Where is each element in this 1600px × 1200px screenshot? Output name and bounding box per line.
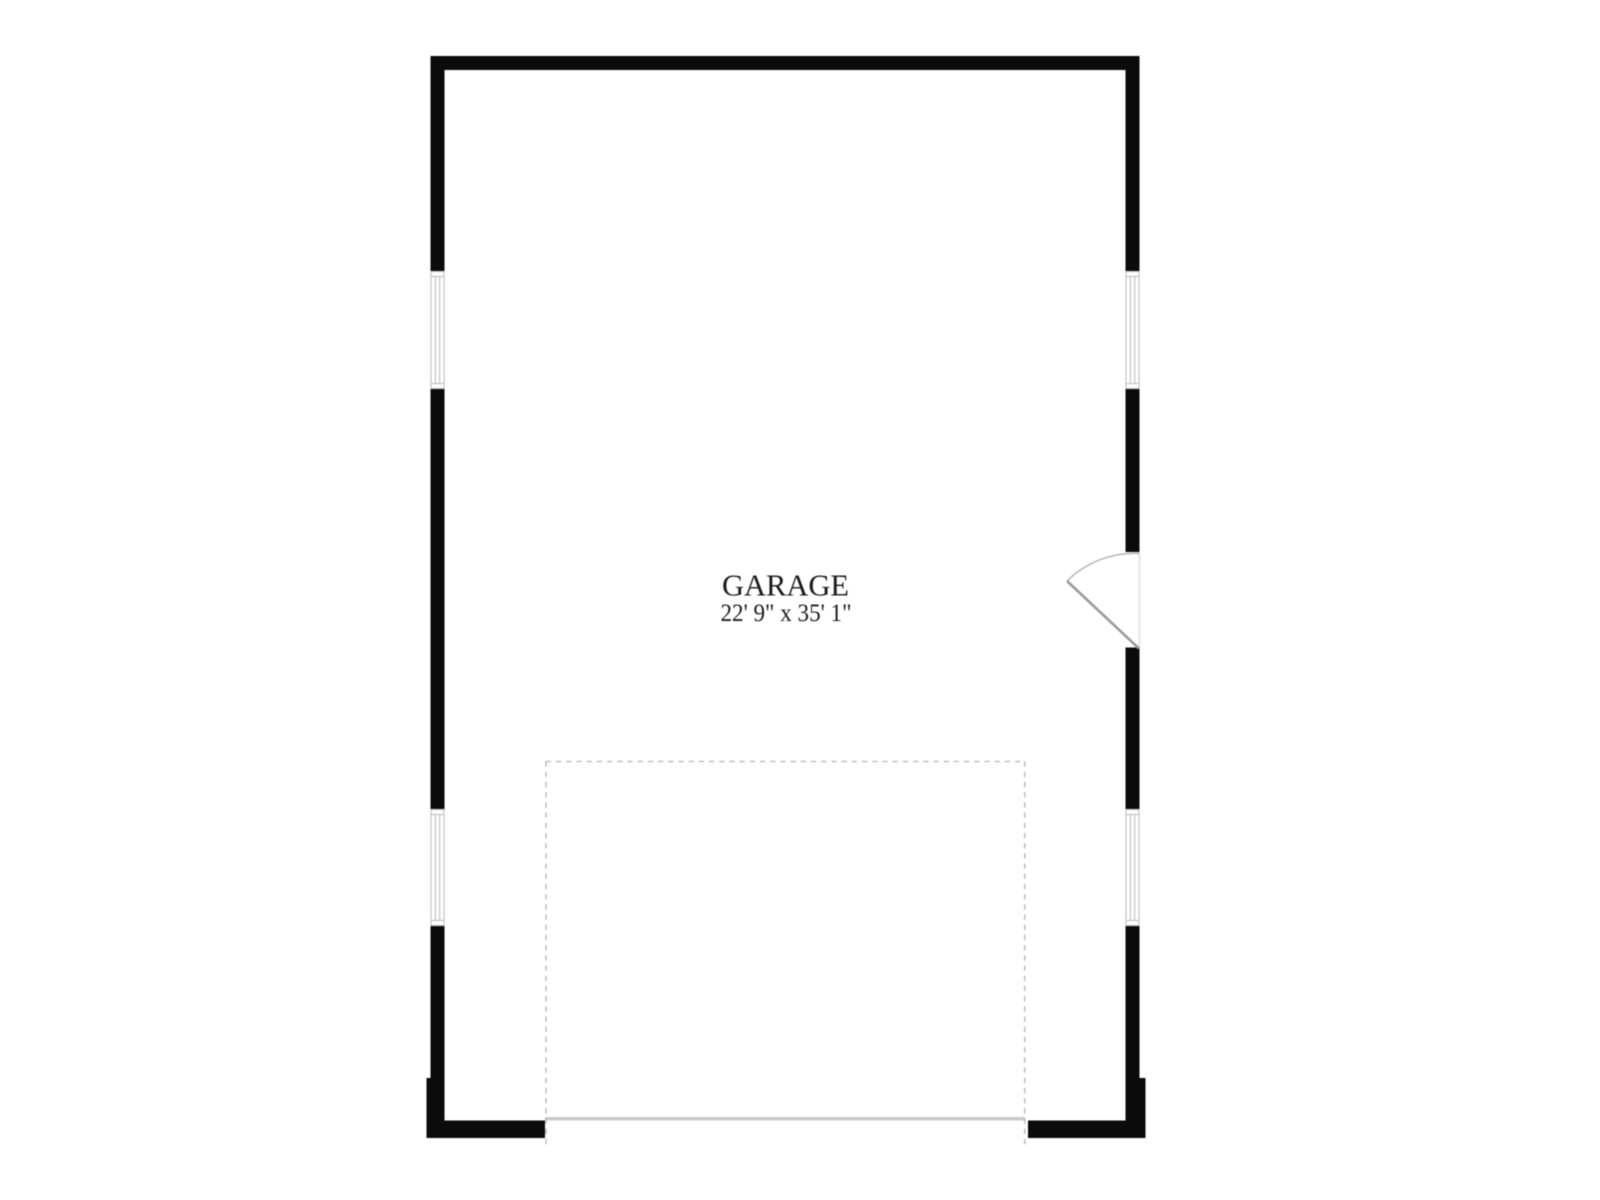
svg-text:22' 9" x 35' 1": 22' 9" x 35' 1"	[721, 600, 852, 627]
svg-text:GARAGE: GARAGE	[722, 569, 849, 603]
